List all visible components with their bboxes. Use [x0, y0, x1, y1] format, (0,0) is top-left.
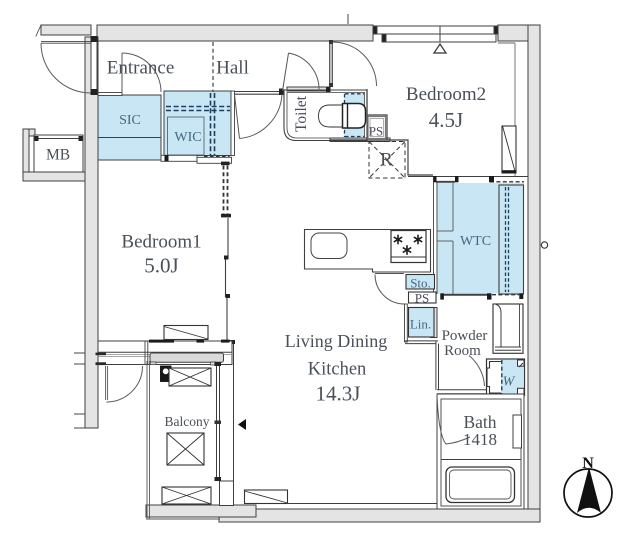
svg-text:14.3J: 14.3J	[316, 382, 361, 406]
svg-text:5.0J: 5.0J	[144, 254, 178, 278]
svg-text:WIC: WIC	[174, 130, 201, 145]
svg-text:Hall: Hall	[216, 58, 249, 79]
svg-text:Lin.: Lin.	[410, 317, 431, 332]
svg-text:Kitchen: Kitchen	[308, 360, 367, 380]
svg-text:Room: Room	[444, 343, 481, 359]
svg-text:Entrance: Entrance	[107, 58, 175, 79]
svg-text:Living Dining: Living Dining	[285, 331, 388, 351]
svg-text:N: N	[582, 455, 594, 472]
svg-text:PS: PS	[369, 124, 383, 139]
svg-text:1418: 1418	[463, 430, 497, 449]
svg-text:SIC: SIC	[119, 113, 141, 128]
svg-text:R: R	[380, 150, 393, 171]
svg-text:Bedroom1: Bedroom1	[121, 232, 201, 253]
svg-text:Balcony: Balcony	[165, 414, 210, 429]
svg-text:PS: PS	[415, 291, 429, 306]
svg-text:4.5J: 4.5J	[429, 108, 463, 132]
svg-text:Powder: Powder	[442, 328, 488, 344]
svg-text:Sto.: Sto.	[410, 276, 431, 291]
svg-text:W: W	[503, 375, 516, 390]
svg-text:WTC: WTC	[460, 234, 491, 249]
svg-text:MB: MB	[46, 147, 70, 164]
svg-text:Bedroom2: Bedroom2	[406, 84, 486, 105]
svg-text:Bath: Bath	[463, 412, 496, 432]
svg-text:Toilet: Toilet	[293, 95, 310, 132]
